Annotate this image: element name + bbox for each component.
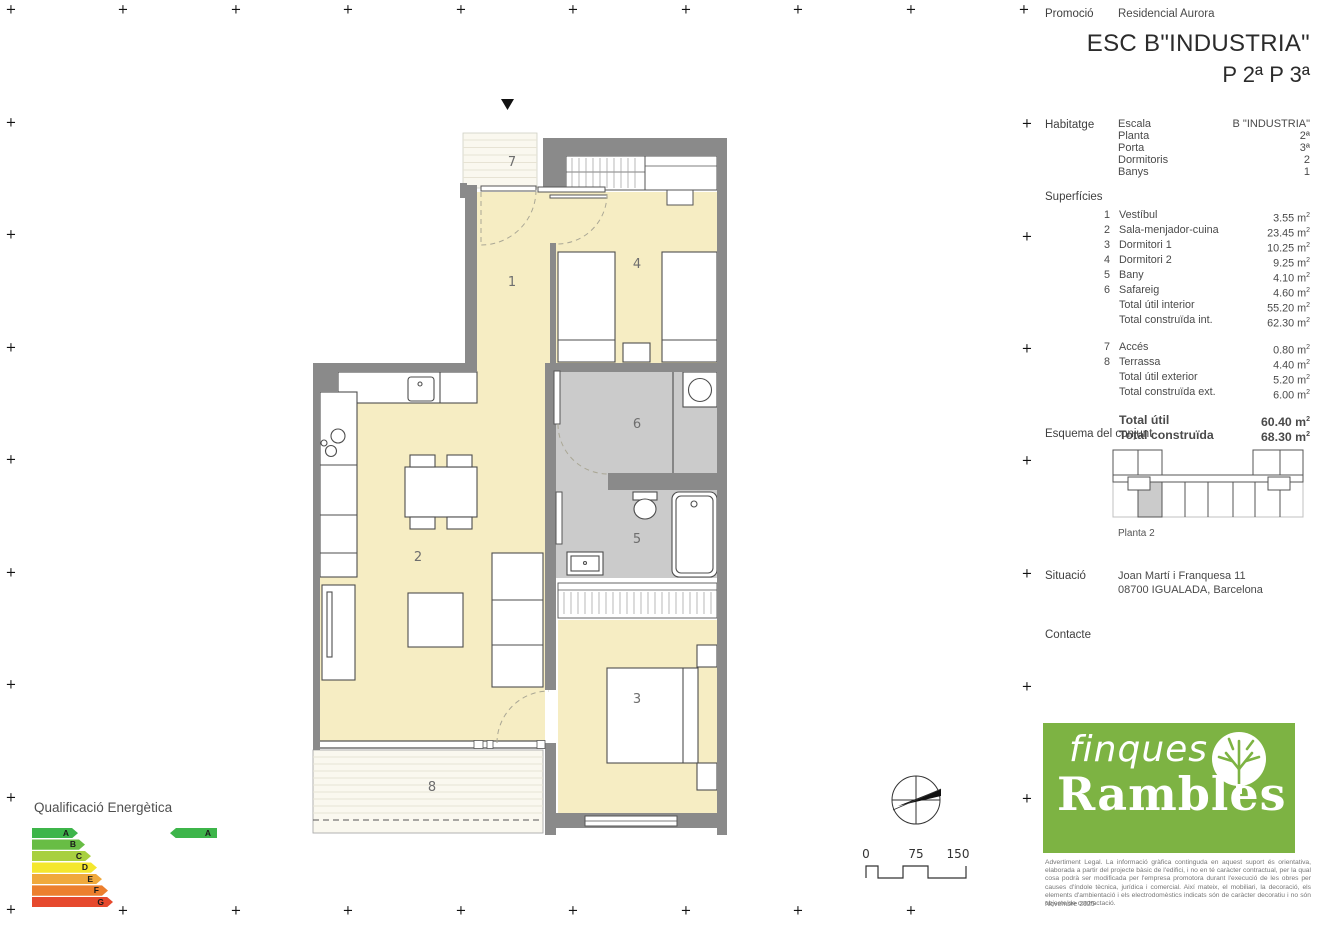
dwelling-row: EscalaB "INDUSTRIA" [1118,118,1310,130]
compass-icon [892,776,941,824]
dwelling-key: Dormitoris [1118,154,1168,166]
energy-level-letter: A [63,829,69,838]
surface-row: 5Bany4.10 m2 [1096,270,1310,285]
room-label-3: 3 [633,692,641,707]
surface-area: 4.10 m2 [1273,270,1310,285]
surface-num: 3 [1096,240,1110,255]
finques-rambles-logo: finques Rambles [1043,723,1295,853]
logo-word-finques: finques [1069,729,1208,770]
surface-area: 3.55 m2 [1273,210,1310,225]
tree-icon [1209,729,1269,795]
scale-bar: 0 75 150 [862,847,969,878]
surface-area: 68.30 m2 [1261,429,1310,444]
room-label-5: 5 [633,532,641,547]
floor-plan-sheet: { "header": { "promo_label": "Promoció",… [0,0,1322,926]
entry-direction-marker [501,99,514,110]
surface-row: 4Dormitori 29.25 m2 [1096,255,1310,270]
surfaces-table: 1Vestíbul3.55 m22Sala-menjador-cuina23.4… [1096,210,1310,444]
surface-name: Total construïda ext. [1119,387,1273,402]
surface-num: 4 [1096,255,1110,270]
surface-name: Terrassa [1119,357,1273,372]
surface-row: Total útil60.40 m2 [1096,414,1310,429]
surface-num [1096,315,1110,330]
surface-name: Total construïda int. [1119,315,1267,330]
sheet-subtitle: P 2ª P 3ª [1040,62,1310,88]
surface-num: 1 [1096,210,1110,225]
surface-area: 10.25 m2 [1267,240,1310,255]
sheet-title-block: ESC B"INDUSTRIA" P 2ª P 3ª [1040,30,1310,88]
dwelling-key: Planta [1118,130,1149,142]
room-label-1: 1 [508,275,516,290]
surface-area: 0.80 m2 [1273,342,1310,357]
energy-rating-indicator: A [170,828,217,838]
bedroom1-closet [558,583,717,618]
dwelling-row: Porta3ª [1118,142,1310,154]
surface-row: Total construïda ext.6.00 m2 [1096,387,1310,402]
scheme-caption: Planta 2 [1118,528,1155,539]
surface-name: Bany [1119,270,1273,285]
room-label-7: 7 [508,155,516,170]
contact-label: Contacte [1045,629,1091,641]
dwelling-value: 3ª [1300,142,1310,154]
surface-row: 2Sala-menjador-cuina23.45 m2 [1096,225,1310,240]
energy-level-letter: B [70,840,76,849]
surface-num: 8 [1096,357,1110,372]
energy-level-a: A [32,828,78,838]
surface-area: 60.40 m2 [1261,414,1310,429]
energy-level-b: B [32,839,85,849]
dwelling-value: 2ª [1300,130,1310,142]
interior-surfaces-group: 1Vestíbul3.55 m22Sala-menjador-cuina23.4… [1096,210,1310,330]
surface-name: Dormitori 1 [1119,240,1267,255]
energy-level-f: F [32,885,108,895]
surface-name: Accés [1119,342,1273,357]
surface-area: 9.25 m2 [1273,255,1310,270]
surface-name: Vestíbul [1119,210,1273,225]
dwelling-key: Banys [1118,166,1149,178]
scale-label-0: 0 [862,847,870,861]
dwelling-value: 2 [1304,154,1310,166]
surface-row: Total útil interior55.20 m2 [1096,300,1310,315]
surface-num: 7 [1096,342,1110,357]
sheet-title: ESC B"INDUSTRIA" [1040,30,1310,58]
surface-name: Sala-menjador-cuina [1119,225,1267,240]
scale-label-75: 75 [908,847,923,861]
room-label-4: 4 [633,257,641,272]
dwelling-key: Porta [1118,142,1144,154]
surfaces-label: Superfícies [1045,191,1103,203]
surface-row: 7Accés0.80 m2 [1096,342,1310,357]
energy-level-letter: D [82,863,88,872]
surface-row: Total útil exterior5.20 m2 [1096,372,1310,387]
surface-num: 6 [1096,285,1110,300]
building-scheme-diagram [1108,446,1310,524]
energy-level-letter: C [76,852,82,861]
energy-level-g: G [32,897,113,907]
surface-name: Safareig [1119,285,1273,300]
location-address: Joan Martí i Franquesa 11 08700 IGUALADA… [1118,570,1263,597]
surface-num [1096,300,1110,315]
surface-row: Total construïda int.62.30 m2 [1096,315,1310,330]
surface-name: Total útil exterior [1119,372,1273,387]
surface-num: 2 [1096,225,1110,240]
energy-level-c: C [32,851,91,861]
energy-level-e: E [32,874,102,884]
surface-row: 6Safareig4.60 m2 [1096,285,1310,300]
location-label: Situació [1045,570,1086,582]
surface-area: 6.00 m2 [1273,387,1310,402]
acces-area [463,133,537,188]
room-label-6: 6 [633,417,641,432]
energy-level-d: D [32,862,97,872]
energy-level-letter: G [97,898,104,907]
floor-plan-drawing: 12345678 0 75 150 [0,0,1040,926]
energy-level-letter: F [94,886,99,895]
surface-area: 4.60 m2 [1273,285,1310,300]
surface-row: 3Dormitori 110.25 m2 [1096,240,1310,255]
energy-level-letter: E [87,875,93,884]
dwelling-row: Banys1 [1118,166,1310,178]
surface-area: 23.45 m2 [1267,225,1310,240]
dwelling-value: B "INDUSTRIA" [1233,118,1310,130]
energy-rating-scale: ABCDEFG [32,828,113,908]
exterior-surfaces-group: 7Accés0.80 m28Terrassa4.40 m2Total útil … [1096,342,1310,402]
scheme-label: Esquema del conjunt [1045,428,1152,440]
dwelling-value: 1 [1304,166,1310,178]
dwelling-row: Dormitoris2 [1118,154,1310,166]
surface-row: 8Terrassa4.40 m2 [1096,357,1310,372]
surface-area: 4.40 m2 [1273,357,1310,372]
promotion-value: Residencial Aurora [1118,8,1215,20]
room-label-2: 2 [414,550,422,565]
surface-num [1096,414,1110,429]
promotion-label: Promoció [1045,8,1094,20]
dwelling-details: EscalaB "INDUSTRIA"Planta2ªPorta3ªDormit… [1118,118,1310,178]
surface-area: 62.30 m2 [1267,315,1310,330]
surface-area: 5.20 m2 [1273,372,1310,387]
energy-chart-title: Qualificació Energètica [34,800,172,815]
surface-num [1096,372,1110,387]
address-line1: Joan Martí i Franquesa 11 [1118,570,1263,584]
surface-name: Dormitori 2 [1119,255,1273,270]
dwelling-key: Escala [1118,118,1151,130]
room-label-8: 8 [428,780,436,795]
dwelling-label: Habitatge [1045,119,1094,131]
legal-date: Novembre 2025 [1045,901,1095,908]
surface-name: Total útil interior [1119,300,1267,315]
surface-name: Total útil [1119,414,1261,429]
surface-num [1096,387,1110,402]
dwelling-row: Planta2ª [1118,130,1310,142]
scale-label-150: 150 [947,847,970,861]
surface-area: 55.20 m2 [1267,300,1310,315]
surface-row: 1Vestíbul3.55 m2 [1096,210,1310,225]
address-line2: 08700 IGUALADA, Barcelona [1118,584,1263,598]
surface-num: 5 [1096,270,1110,285]
energy-rating-letter: A [205,829,211,838]
